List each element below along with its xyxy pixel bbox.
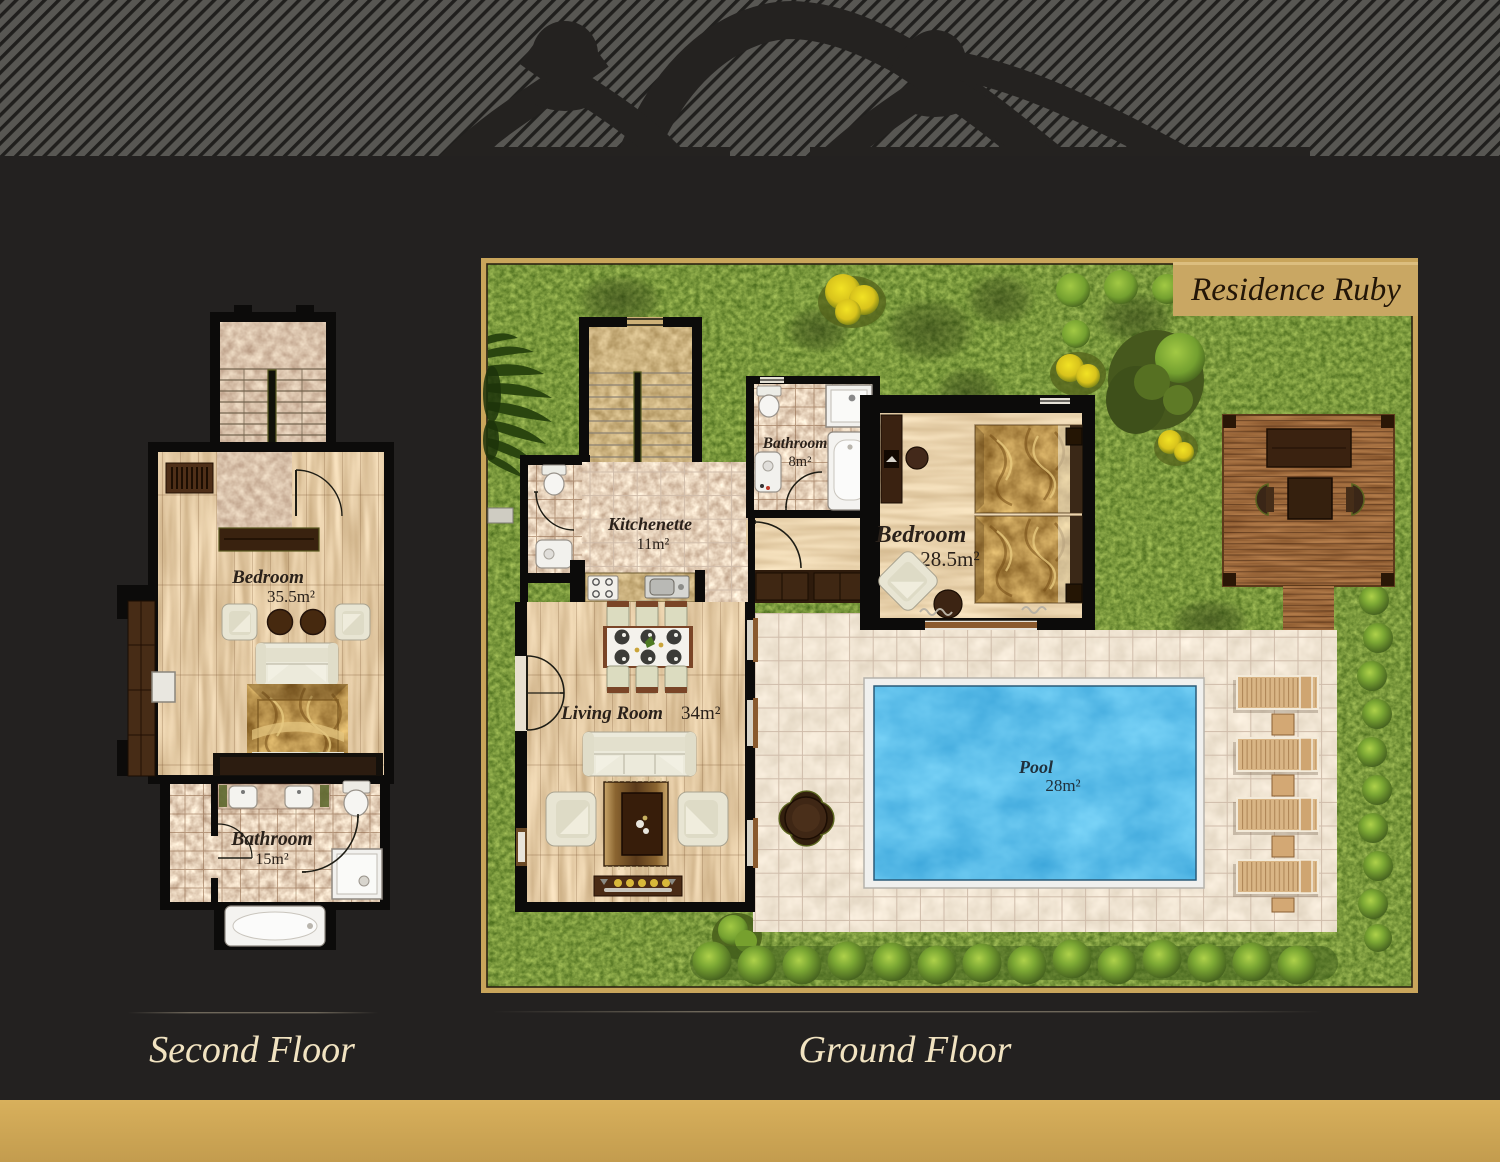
svg-text:34m²: 34m² [681, 703, 721, 724]
svg-text:Bedroom: Bedroom [231, 567, 304, 588]
svg-text:Pool: Pool [1018, 757, 1053, 777]
svg-text:28m²: 28m² [1045, 776, 1080, 795]
svg-text:35.5m²: 35.5m² [267, 587, 315, 606]
svg-text:Kitchenette: Kitchenette [607, 514, 692, 534]
svg-text:Bathroom: Bathroom [762, 435, 828, 452]
svg-text:11m²: 11m² [637, 536, 670, 553]
svg-text:Ground Floor: Ground Floor [799, 1029, 1012, 1071]
svg-text:Bedroom: Bedroom [875, 522, 967, 548]
svg-text:Bathroom: Bathroom [230, 829, 312, 850]
svg-text:Living Room: Living Room [560, 703, 663, 724]
svg-text:Second Floor: Second Floor [149, 1029, 355, 1071]
svg-text:15m²: 15m² [255, 851, 288, 868]
svg-text:8m²: 8m² [789, 454, 813, 470]
svg-text:Residence Ruby: Residence Ruby [1190, 272, 1401, 308]
svg-text:28.5m²: 28.5m² [920, 547, 979, 571]
